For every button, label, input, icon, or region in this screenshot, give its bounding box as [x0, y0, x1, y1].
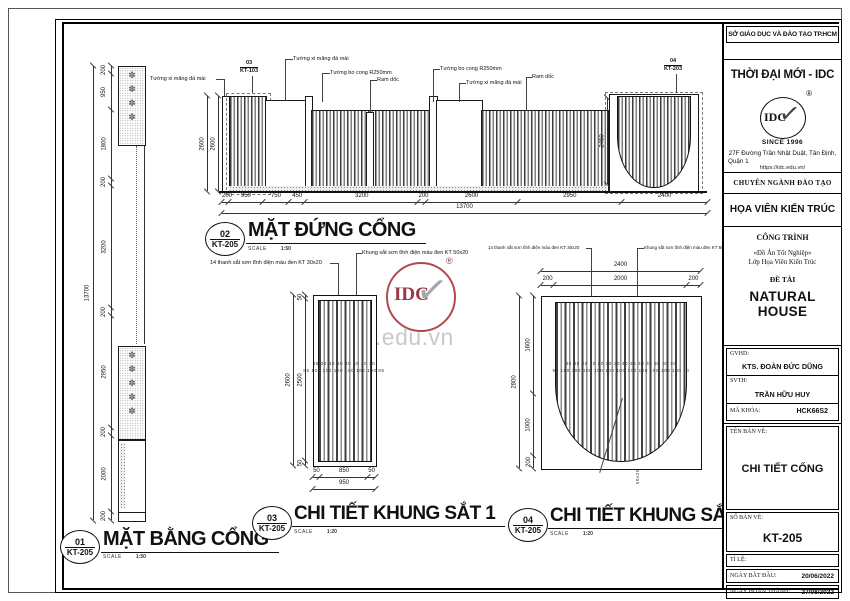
detail1-mini-dims-top: 30 30 30 30 30 30 30 30 [302, 361, 386, 366]
plan-number: 01 [65, 537, 95, 548]
plan-total-dim: 13700 [82, 66, 94, 520]
plan-sheet-ref: KT-205 [67, 548, 93, 558]
detail2-title-bubble: 04 KT-205 [508, 508, 548, 542]
drawing-name: CHI TIẾT CỔNG [727, 463, 838, 475]
detail1-bottom-total-dim: 950 [313, 480, 375, 490]
topic-label: ĐỀ TÀI [724, 266, 841, 284]
sheet-number: KT-205 [727, 531, 838, 545]
elevation-gate-center-stile [366, 112, 374, 191]
detail1-label-bars: 14 thanh sắt sơn tĩnh điện màu đen KT 30… [210, 260, 322, 266]
elevation-callout-2: 04 KT-203 [664, 58, 682, 73]
org-address-2: Quận 1 [728, 158, 749, 165]
registered-icon: ® [806, 89, 812, 98]
detail2-left-total-dim: 2800 [510, 296, 520, 468]
detail1-label-frame: Khung sắt sơn tĩnh điện màu đen KT 50x20 [362, 250, 468, 256]
elevation-title: MẶT ĐỨNG CỔNG [246, 219, 426, 244]
check-icon: ✓ [777, 98, 802, 131]
elevation-title-bubble: 02 KT-205 [205, 222, 245, 256]
class-label: MÃ KHÓA: [730, 408, 760, 414]
title-block: SỞ GIÁO DỤC VÀ ĐÀO TẠO TP.HCM THỜI ĐẠI M… [722, 24, 841, 588]
project-line-1: «Đồ Án Tốt Nghiệp» [724, 242, 841, 257]
elevation-height-dim-b: 2600 [209, 96, 219, 191]
elevation-wall-b [436, 100, 483, 193]
end-date: 27/08/2022 [801, 589, 834, 596]
elevation-height-dim-a: 2600 [198, 96, 208, 191]
title-block-name-cell: TÊN BẢN VẼ: CHI TIẾT CỔNG SỐ BẢN VẼ: KT-… [724, 426, 841, 599]
detail2-number: 04 [513, 515, 543, 526]
org-website: https://idc.edu.vn/ [724, 165, 841, 171]
detail1-bottom-dim-chain: 50 850 50 [313, 468, 375, 478]
plan-gate-hatch [120, 443, 125, 508]
major-label: CHUYÊN NGÀNH ĐÀO TẠO [724, 173, 841, 187]
elevation-total-dim: 13700 [222, 204, 707, 214]
logo-since: SINCE 1996 [724, 139, 841, 146]
leader-line [322, 73, 330, 102]
plan-dim-chain: 200 950 1800 200 3200 200 2950 200 2000 … [98, 66, 112, 520]
detail2-size-label: 50x20 [635, 469, 640, 484]
plan-planter-bottom: ✽✽✽✽✽ [118, 346, 146, 440]
elevation-sheet-ref: KT-205 [212, 240, 238, 250]
detail2-sheet-ref: KT-205 [515, 526, 541, 536]
gvhd-value: KTS. ĐOÀN ĐỨC DŨNG [727, 362, 838, 371]
title-block-project-cell: CÔNG TRÌNH «Đồ Án Tốt Nghiệp» Lớp Họa Vi… [724, 227, 841, 346]
check-icon: ✓ [413, 266, 451, 315]
title-block-org-cell: THỜI ĐẠI MỚI - IDC IDC ✓ ® SINCE 1996 27… [724, 69, 841, 173]
leader-line [216, 79, 225, 96]
detail1-number: 03 [257, 513, 287, 524]
project-line-2: Lớp Họa Viên Kiến Trúc [724, 257, 841, 266]
class-value: HCK66S2 [796, 408, 828, 415]
title-block-people-cell: GVHD: KTS. ĐOÀN ĐỨC DŨNG SVTH: TRẦN HỮU … [724, 348, 841, 424]
elevation-wall-a [265, 100, 307, 193]
agency-name: SỞ GIÁO DỤC VÀ ĐÀO TẠO TP.HCM [726, 26, 839, 43]
flower-icons: ✽✽✽✽ [126, 69, 138, 125]
elevation-label-wall-3: Tường xi măng đá mài [466, 80, 522, 86]
registered-icon: ® [446, 256, 453, 266]
detail1-bars [318, 300, 372, 462]
plan-title: MẶT BẰNG CỔNG [101, 528, 279, 553]
svth-label: SVTH: [730, 378, 747, 384]
gvhd-label: GVHD: [730, 351, 749, 357]
idc-logo: IDC ✓ ® [760, 97, 806, 139]
org-address-1: 27F Đường Trần Nhật Duật, Tân Định, [724, 150, 841, 157]
scale-label: TỈ LỆ: [730, 557, 746, 563]
elevation-label-curve-2: Tường bo cong R250mm [440, 66, 502, 72]
plan-title-bubble: 01 KT-205 [60, 530, 100, 564]
detail2-top-dim-chain: 200 2000 200 [541, 276, 700, 286]
detail1-left-dim-chain: 50 2500 50 [296, 295, 306, 465]
elevation-ugate-dim: 2450 [598, 98, 608, 184]
org-name: THỜI ĐẠI MỚI - IDC [724, 69, 841, 81]
sheet-number-label: SỐ BẢN VẼ: [730, 515, 763, 521]
leader-line [526, 77, 532, 111]
detail1-frame [313, 295, 377, 467]
detail2-left-dim-chain: 1600 1000 200 [524, 296, 534, 468]
plan-planter-top: ✽✽✽✽ [118, 66, 146, 146]
detail2-top-total-dim: 2400 [541, 262, 700, 272]
elevation-scale: SCALE1:50 [248, 246, 291, 252]
detail1-mini-dims-bottom: 85 100 100 100 100 100 100 85 [302, 368, 386, 373]
detail2-label-frame: Khung sắt sơn tĩnh điện màu đen KT 50x20 [644, 245, 731, 250]
major-value: HỌA VIÊN KIẾN TRÚC [724, 194, 841, 215]
svth-value: TRẦN HỮU HUY [727, 390, 838, 399]
detail2-mini-dims-bottom: 90 100 100 100 100 100 100 100 100 100 1… [548, 368, 694, 373]
start-date: 20/06/2022 [801, 573, 834, 580]
elevation-number: 02 [210, 229, 240, 240]
plan-end-cap [118, 512, 146, 522]
elevation-side-panel [481, 110, 609, 193]
title-block-agency-cell: SỞ GIÁO DỤC VÀ ĐÀO TẠO TP.HCM [724, 26, 841, 60]
title-block-major-cell: HỌA VIÊN KIẾN TRÚC [724, 194, 841, 227]
leader-line [459, 83, 466, 102]
topic-value: NATURAL HOUSE [724, 284, 841, 319]
plan-scale: SCALE1:50 [103, 554, 146, 560]
end-date-label: NGÀY HOÀN THÀNH: [730, 589, 790, 595]
detail2-arch-bars [555, 302, 687, 462]
drawing-name-label: TÊN BẢN VẼ: [730, 429, 767, 435]
leader-line [676, 74, 677, 93]
detail2-scale: SCALE1:20 [550, 531, 593, 537]
plan-wall-dashed [136, 146, 145, 344]
detail1-title: CHI TIẾT KHUNG SẮT 1 [292, 503, 505, 527]
drawing-sheet: 13700 200 950 1800 200 3200 200 2950 200… [0, 0, 850, 601]
project-label: CÔNG TRÌNH [724, 227, 841, 242]
detail2-label-bars: 14 thanh sắt sơn tĩnh điện màu đen KT 30… [488, 245, 579, 250]
elevation-label-ramp-1: Ram dốc [377, 77, 399, 83]
detail1-sheet-ref: KT-205 [259, 524, 285, 534]
elevation-fence-panel [229, 96, 267, 193]
leader-line [433, 69, 440, 102]
idc-watermark-logo: IDC ✓ ® [386, 262, 456, 332]
start-date-label: NGÀY BẮT ĐẦU: [730, 573, 777, 579]
leader-line [637, 248, 644, 297]
elevation-label-curve-1: Tường bo cong R250mm [330, 70, 392, 76]
elevation-callout-1: 03 KT-103 [240, 60, 258, 75]
flower-icons: ✽✽✽✽✽ [126, 349, 138, 419]
elevation-label-ramp-2: Ram dốc [532, 74, 554, 80]
plan-gate-leaf [118, 440, 146, 514]
elevation-label-wall-2: Tường xi măng đá mài [293, 56, 349, 62]
leader-line [370, 80, 377, 112]
elevation-dim-chain: 200 950 750 450 3200 200 2600 2950 2400 [222, 193, 707, 203]
detail1-scale: SCALE1:20 [294, 529, 337, 535]
detail1-title-bubble: 03 KT-205 [252, 506, 292, 540]
detail1-left-total-dim: 2600 [284, 295, 294, 465]
elevation-label-wall-1: Tường xi măng đá mài [150, 76, 206, 82]
detail2-frame [541, 296, 702, 470]
detail2-mini-dims-top: 30 30 30 30 30 30 30 30 30 30 30 30 30 3… [548, 361, 694, 366]
leader-line [285, 59, 293, 101]
title-block-major-label-cell: CHUYÊN NGÀNH ĐÀO TẠO [724, 173, 841, 194]
leader-line [356, 253, 362, 296]
leader-line [252, 76, 253, 93]
